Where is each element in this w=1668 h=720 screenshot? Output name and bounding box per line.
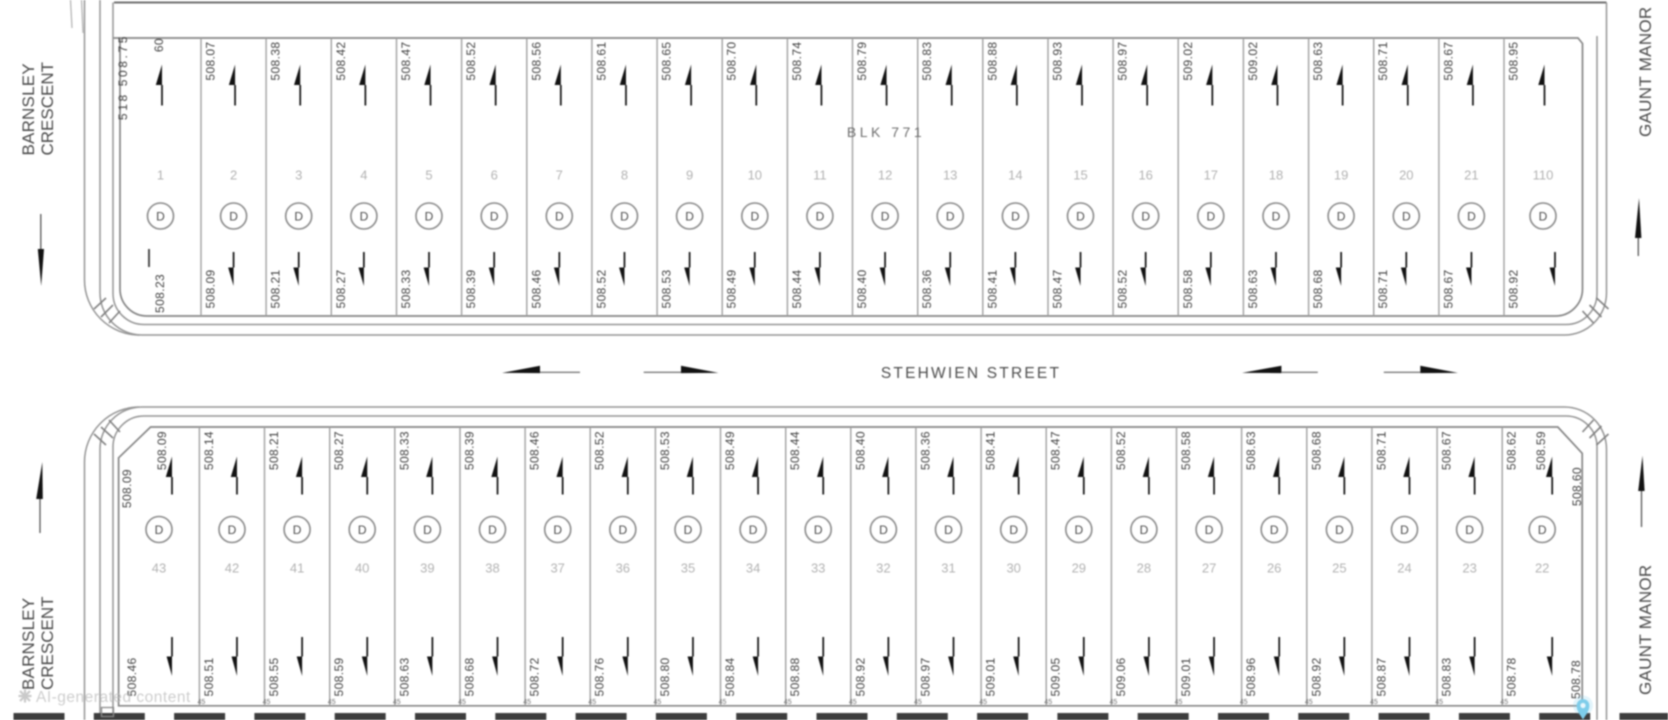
svg-text:508.47: 508.47 [1049,431,1063,470]
svg-text:D: D [749,523,758,537]
svg-text:45: 45 [654,699,662,706]
svg-text:508.41: 508.41 [985,269,999,308]
svg-text:3: 3 [295,168,302,183]
svg-text:D: D [423,523,432,537]
svg-text:508.92: 508.92 [853,657,867,696]
svg-text:15: 15 [1073,168,1087,183]
svg-text:508.40: 508.40 [853,431,867,470]
svg-text:45: 45 [263,699,271,706]
svg-text:508.92: 508.92 [1507,269,1521,308]
svg-text:43: 43 [152,561,166,576]
svg-text:508.09: 508.09 [120,469,134,508]
svg-text:508.83: 508.83 [1440,657,1454,696]
svg-text:9: 9 [686,168,693,183]
svg-text:508.78: 508.78 [1505,657,1519,696]
svg-text:45: 45 [1110,699,1118,706]
svg-text:GAUNT MANOR: GAUNT MANOR [1636,7,1655,138]
svg-text:508.27: 508.27 [332,431,346,470]
svg-text:508.76: 508.76 [593,657,607,696]
svg-text:D: D [1467,210,1476,224]
svg-text:60: 60 [152,38,166,52]
svg-text:508.67: 508.67 [1440,431,1454,470]
svg-text:508.93: 508.93 [1050,42,1064,81]
svg-text:D: D [1465,523,1474,537]
svg-text:508.49: 508.49 [725,269,739,308]
svg-text:2: 2 [230,168,237,183]
svg-text:D: D [881,210,890,224]
svg-text:35: 35 [681,561,695,576]
svg-text:39: 39 [420,561,434,576]
svg-text:508.62: 508.62 [1505,431,1519,470]
svg-text:1: 1 [157,168,164,183]
svg-text:45: 45 [979,699,987,706]
svg-text:508.78: 508.78 [1569,660,1583,699]
svg-text:8: 8 [621,168,628,183]
svg-text:D: D [620,210,629,224]
svg-text:D: D [1337,210,1346,224]
svg-text:6: 6 [491,168,498,183]
svg-text:D: D [1009,523,1018,537]
svg-text:D: D [490,210,499,224]
svg-text:508.52: 508.52 [1116,269,1130,308]
svg-text:D: D [1074,523,1083,537]
svg-text:D: D [1402,210,1411,224]
svg-text:D: D [425,210,434,224]
svg-text:D: D [228,523,237,537]
svg-text:508.74: 508.74 [790,42,804,81]
svg-text:D: D [229,210,238,224]
svg-text:D: D [814,523,823,537]
svg-text:D: D [618,523,627,537]
svg-text:508.97: 508.97 [918,657,932,696]
svg-text:508.83: 508.83 [920,42,934,81]
svg-text:D: D [946,210,955,224]
svg-text:508.79: 508.79 [855,42,869,81]
svg-text:509.01: 509.01 [984,657,998,696]
svg-text:BARNSLEY: BARNSLEY [19,63,38,155]
svg-text:AI-generated content: AI-generated content [36,689,191,706]
svg-text:508.53: 508.53 [658,431,672,470]
svg-text:5: 5 [425,168,432,183]
svg-text:29: 29 [1072,561,1086,576]
svg-text:508.68: 508.68 [462,657,476,696]
svg-text:508.39: 508.39 [462,431,476,470]
svg-text:508.67: 508.67 [1441,42,1455,81]
svg-text:508.33: 508.33 [399,269,413,308]
svg-text:508.65: 508.65 [660,42,674,81]
svg-text:508.44: 508.44 [790,269,804,308]
svg-text:23: 23 [1462,561,1476,576]
svg-text:508.41: 508.41 [984,431,998,470]
svg-text:D: D [1270,523,1279,537]
svg-text:D: D [293,523,302,537]
svg-text:25: 25 [1332,561,1346,576]
svg-text:508.51: 508.51 [202,657,216,696]
svg-text:12: 12 [878,168,892,183]
svg-text:508.44: 508.44 [788,431,802,470]
svg-text:508.71: 508.71 [1374,431,1388,470]
svg-text:D: D [1011,210,1020,224]
svg-text:CRESCENT: CRESCENT [38,596,57,690]
svg-text:45: 45 [328,699,336,706]
svg-text:518 508.75: 518 508.75 [116,34,130,120]
svg-text:BARNSLEY: BARNSLEY [19,598,38,690]
svg-text:D: D [553,523,562,537]
svg-text:10: 10 [748,168,762,183]
svg-text:17: 17 [1204,168,1218,183]
svg-text:508.21: 508.21 [267,431,281,470]
svg-text:508.60: 508.60 [1570,467,1584,506]
svg-text:508.71: 508.71 [1376,269,1390,308]
svg-text:13: 13 [943,168,957,183]
svg-text:508.58: 508.58 [1181,269,1195,308]
svg-text:508.49: 508.49 [723,431,737,470]
svg-text:508.46: 508.46 [529,269,543,308]
svg-text:508.09: 508.09 [204,269,218,308]
svg-text:D: D [684,523,693,537]
svg-text:D: D [358,523,367,537]
svg-text:508.59: 508.59 [332,657,346,696]
svg-text:508.07: 508.07 [204,42,218,81]
svg-text:D: D [1206,210,1215,224]
svg-text:509.01: 509.01 [1179,657,1193,696]
svg-text:508.33: 508.33 [397,431,411,470]
svg-text:508.72: 508.72 [528,657,542,696]
svg-text:24: 24 [1397,561,1411,576]
svg-text:45: 45 [1044,699,1052,706]
svg-text:D: D [488,523,497,537]
svg-text:508.87: 508.87 [1374,657,1388,696]
svg-text:STEHWIEN STREET: STEHWIEN STREET [881,365,1061,382]
svg-text:36: 36 [616,561,630,576]
svg-text:508.09: 508.09 [155,431,169,470]
svg-text:508.27: 508.27 [334,269,348,308]
svg-text:508.55: 508.55 [267,657,281,696]
svg-text:26: 26 [1267,561,1281,576]
svg-text:508.39: 508.39 [464,269,478,308]
svg-text:508.36: 508.36 [918,431,932,470]
svg-text:508.52: 508.52 [1114,431,1128,470]
svg-text:45: 45 [719,699,727,706]
svg-text:D: D [156,210,165,224]
svg-text:D: D [1272,210,1281,224]
svg-text:45: 45 [458,699,466,706]
svg-text:D: D [685,210,694,224]
svg-text:508.88: 508.88 [985,42,999,81]
svg-text:GAUNT MANOR: GAUNT MANOR [1636,565,1655,696]
svg-text:509.05: 509.05 [1049,657,1063,696]
svg-text:508.52: 508.52 [594,269,608,308]
svg-text:508.95: 508.95 [1507,42,1521,81]
svg-text:33: 33 [811,561,825,576]
svg-text:508.71: 508.71 [1376,42,1390,81]
svg-text:D: D [1538,523,1547,537]
svg-text:D: D [944,523,953,537]
svg-text:CRESCENT: CRESCENT [38,62,57,156]
svg-text:45: 45 [849,699,857,706]
svg-text:45: 45 [198,699,206,706]
svg-text:38: 38 [485,561,499,576]
svg-text:27: 27 [1202,561,1216,576]
svg-text:508.42: 508.42 [334,42,348,81]
svg-text:509.06: 509.06 [1114,657,1128,696]
svg-text:22: 22 [1535,561,1549,576]
svg-text:508.59: 508.59 [1534,431,1548,470]
svg-text:BLK 771: BLK 771 [847,124,925,140]
svg-text:16: 16 [1138,168,1152,183]
svg-text:21: 21 [1464,168,1478,183]
svg-text:45: 45 [1500,699,1508,706]
svg-text:508.56: 508.56 [529,42,543,81]
svg-text:508.47: 508.47 [1050,269,1064,308]
svg-text:14: 14 [1008,168,1022,183]
svg-text:508.97: 508.97 [1116,42,1130,81]
svg-text:32: 32 [876,561,890,576]
svg-text:37: 37 [550,561,564,576]
svg-text:508.68: 508.68 [1309,431,1323,470]
svg-text:19: 19 [1334,168,1348,183]
svg-text:508.61: 508.61 [594,42,608,81]
svg-text:508.92: 508.92 [1309,657,1323,696]
svg-text:508.23: 508.23 [153,274,167,313]
svg-text:D: D [1141,210,1150,224]
svg-text:41: 41 [290,561,304,576]
svg-text:D: D [1539,210,1548,224]
svg-text:508.63: 508.63 [1244,431,1258,470]
svg-text:45: 45 [1435,699,1443,706]
svg-text:508.80: 508.80 [658,657,672,696]
svg-text:D: D [750,210,759,224]
svg-text:508.36: 508.36 [920,269,934,308]
svg-text:20: 20 [1399,168,1413,183]
svg-text:4: 4 [360,168,367,183]
svg-text:D: D [1140,523,1149,537]
svg-text:509.02: 509.02 [1246,42,1260,81]
svg-text:508.68: 508.68 [1311,269,1325,308]
svg-text:508.52: 508.52 [593,431,607,470]
svg-text:508.47: 508.47 [399,42,413,81]
svg-text:45: 45 [1240,699,1248,706]
svg-text:7: 7 [556,168,563,183]
svg-text:45: 45 [523,699,531,706]
svg-text:D: D [879,523,888,537]
svg-text:508.88: 508.88 [788,657,802,696]
svg-text:31: 31 [941,561,955,576]
svg-text:110: 110 [1533,168,1554,183]
svg-text:D: D [1205,523,1214,537]
svg-text:45: 45 [914,699,922,706]
svg-text:45: 45 [588,699,596,706]
svg-text:508.53: 508.53 [660,269,674,308]
svg-text:508.52: 508.52 [464,42,478,81]
svg-text:D: D [555,210,564,224]
svg-text:508.14: 508.14 [202,431,216,470]
svg-text:508.58: 508.58 [1179,431,1193,470]
svg-text:34: 34 [746,561,760,576]
svg-text:11: 11 [813,168,827,183]
svg-text:40: 40 [355,561,369,576]
svg-text:508.63: 508.63 [397,657,411,696]
svg-text:45: 45 [1175,699,1183,706]
svg-text:D: D [1076,210,1085,224]
svg-text:18: 18 [1269,168,1283,183]
svg-text:42: 42 [225,561,239,576]
svg-text:508.84: 508.84 [723,657,737,696]
svg-text:45: 45 [784,699,792,706]
svg-text:D: D [155,523,164,537]
svg-text:D: D [816,210,825,224]
svg-text:508.46: 508.46 [528,431,542,470]
svg-text:D: D [1400,523,1409,537]
svg-text:D: D [294,210,303,224]
svg-text:D: D [1335,523,1344,537]
svg-text:508.40: 508.40 [855,269,869,308]
svg-text:D: D [360,210,369,224]
svg-text:508.63: 508.63 [1311,42,1325,81]
svg-text:508.67: 508.67 [1441,269,1455,308]
svg-text:508.63: 508.63 [1246,269,1260,308]
svg-text:45: 45 [393,699,401,706]
svg-text:508.38: 508.38 [269,42,283,81]
svg-text:30: 30 [1006,561,1020,576]
svg-text:509.02: 509.02 [1181,42,1195,81]
svg-text:28: 28 [1137,561,1151,576]
svg-text:45: 45 [1370,699,1378,706]
svg-text:508.21: 508.21 [269,269,283,308]
svg-text:508.96: 508.96 [1244,657,1258,696]
svg-text:45: 45 [1305,699,1313,706]
svg-text:508.70: 508.70 [725,42,739,81]
